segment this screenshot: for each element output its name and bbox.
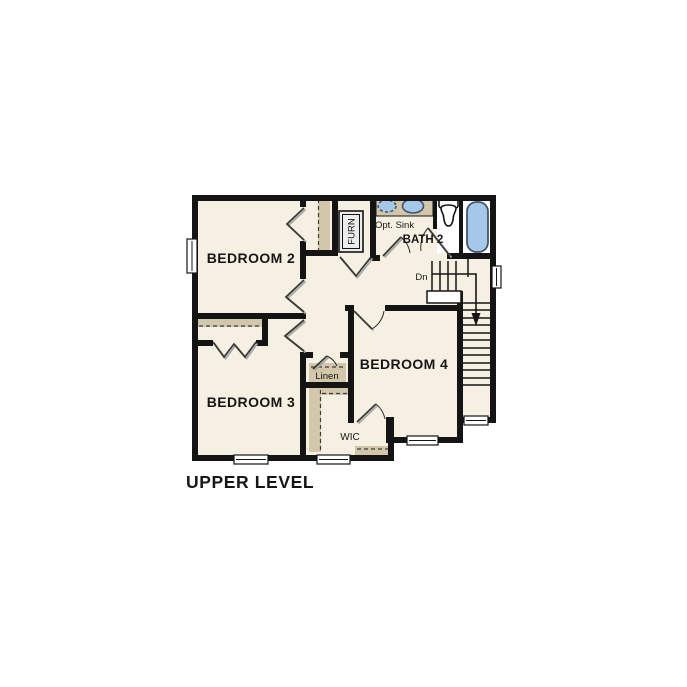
stair-railing [427,291,461,303]
bedroom2-label: BEDROOM 2 [207,250,295,266]
sink-icon [403,199,424,213]
linen-label: Linen [315,371,338,382]
bathtub-icon [467,202,488,252]
bedroom4-label: BEDROOM 4 [360,356,448,372]
plan-title: UPPER LEVEL [186,472,314,492]
bedroom3-label: BEDROOM 3 [207,394,295,410]
opt-sink-label: Opt. Sink [375,220,414,231]
floor-plan-page: BEDROOM 2 BEDROOM 3 BEDROOM 4 BATH 2 Opt… [0,0,687,687]
optional-sink-icon [378,200,396,212]
wic-label: WIC [340,432,359,443]
furnace-label: FURN [347,218,358,245]
floor-plan-drawing: BEDROOM 2 BEDROOM 3 BEDROOM 4 BATH 2 Opt… [0,0,687,687]
bath2-label: BATH 2 [403,234,444,246]
stairs-down-label: Dn [415,272,427,283]
